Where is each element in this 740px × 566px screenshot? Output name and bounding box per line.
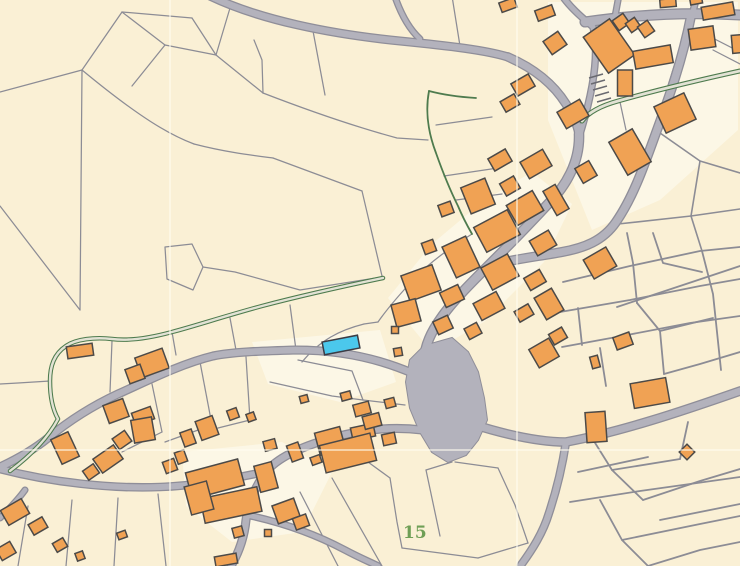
map-viewport[interactable]: 15 [0, 0, 740, 566]
building-footprint [66, 343, 93, 359]
building-footprint [299, 395, 309, 404]
building-footprint [731, 35, 740, 54]
building-footprint [131, 417, 156, 443]
building-footprint [265, 530, 272, 537]
building-footprint [392, 327, 399, 334]
building-footprint [688, 26, 716, 50]
building-footprint [384, 397, 396, 408]
building-footprint [340, 391, 352, 401]
building-footprint [618, 70, 633, 96]
labels-layer: 15 [403, 523, 427, 543]
parcel-number-label: 15 [403, 523, 427, 543]
building-footprint [393, 347, 402, 356]
building-footprint [381, 432, 396, 445]
building-footprint [630, 378, 670, 409]
building-footprint [660, 0, 677, 8]
building-footprint [246, 412, 256, 422]
building-footprint [232, 526, 244, 538]
building-footprint [75, 551, 85, 561]
building-footprint [227, 408, 240, 421]
building-footprint [585, 411, 607, 442]
map-canvas[interactable]: 15 [0, 0, 740, 566]
